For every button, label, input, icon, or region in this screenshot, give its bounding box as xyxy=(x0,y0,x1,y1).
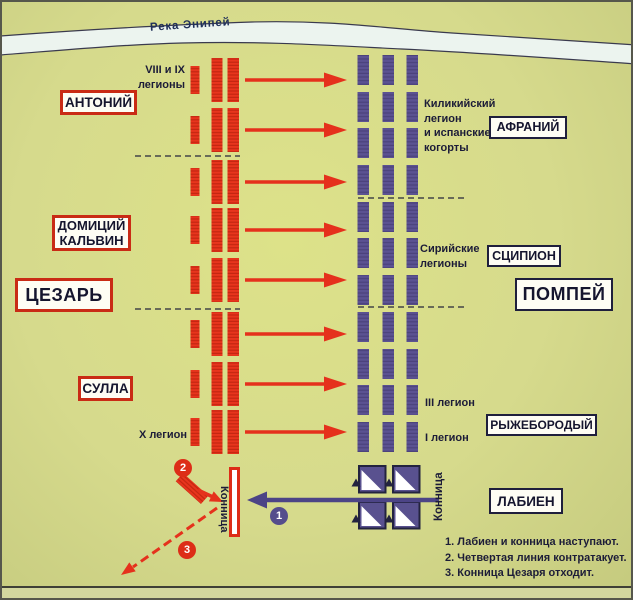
pompey-unit xyxy=(383,55,395,85)
caesar-unit-first-line xyxy=(228,58,240,102)
attack-arrow-head xyxy=(324,73,347,88)
pompey-unit xyxy=(358,128,370,158)
caesar-unit-third-line xyxy=(191,320,200,348)
pompey-unit xyxy=(358,238,370,268)
caesar-unit-second-line xyxy=(212,410,223,454)
legend-item-1: 1. Лабиен и конница наступают. xyxy=(445,535,627,551)
caesar-unit-third-line xyxy=(191,216,200,244)
pompey-unit xyxy=(407,349,419,379)
pompey-unit xyxy=(358,202,370,232)
attack-arrows xyxy=(245,73,347,440)
commander-box-ahenobarbus: РЫЖЕБОРОДЫЙ xyxy=(486,414,597,436)
pompey-unit xyxy=(358,422,370,452)
pompey-infantry-units xyxy=(358,55,419,452)
unit-label-syrian-legions: Сирийские легионы xyxy=(420,242,490,271)
unit-label-legion-i: I легион xyxy=(425,431,495,446)
cavalry-retreat-arrow-shaft xyxy=(133,508,217,567)
caesar-unit-first-line xyxy=(228,258,240,302)
pompey-unit xyxy=(383,165,395,195)
caesar-unit-first-line xyxy=(228,208,240,252)
pompey-unit xyxy=(383,275,395,305)
attack-arrow-head xyxy=(324,175,347,190)
pompey-unit xyxy=(383,202,395,232)
pompey-cavalry-squares xyxy=(352,466,420,529)
pompey-unit xyxy=(407,275,419,305)
battle-map: Река Энипей АНТОНИЙ ДОМИЦИЙ КАЛЬВИН ЦЕЗА… xyxy=(0,0,633,600)
pompey-unit xyxy=(358,275,370,305)
pompey-unit xyxy=(383,312,395,342)
commander-box-antony: АНТОНИЙ xyxy=(60,90,137,115)
commander-box-afranius: АФРАНИЙ xyxy=(489,116,567,139)
caesar-unit-third-line xyxy=(191,116,200,144)
attack-arrow-head xyxy=(324,425,347,440)
army-box-pompey: ПОМПЕЙ xyxy=(515,278,613,311)
unit-label-legion-x: X легион xyxy=(114,428,187,443)
commander-box-domitius-calvinus: ДОМИЦИЙ КАЛЬВИН xyxy=(52,215,131,251)
movement-badge-3: 3 xyxy=(178,541,196,559)
pompey-unit xyxy=(383,349,395,379)
attack-arrow-head xyxy=(324,377,347,392)
movement-badge-1: 1 xyxy=(270,507,288,525)
caesar-unit-first-line xyxy=(228,108,240,152)
caesar-unit-second-line xyxy=(212,208,223,252)
pompey-unit xyxy=(407,55,419,85)
pompey-unit xyxy=(407,312,419,342)
pompey-unit xyxy=(383,422,395,452)
pompey-unit xyxy=(383,92,395,122)
caesar-unit-second-line xyxy=(212,258,223,302)
commander-box-sulla: СУЛЛА xyxy=(78,376,133,401)
caesar-unit-third-line xyxy=(191,266,200,294)
cavalry-retreat-arrow-head xyxy=(121,562,136,575)
caesar-infantry-units xyxy=(191,58,240,454)
caesar-cavalry-label: Конница xyxy=(218,486,230,538)
commander-box-scipio: СЦИПИОН xyxy=(487,245,561,267)
caesar-unit-first-line xyxy=(228,160,240,204)
commander-box-labienus: ЛАБИЕН xyxy=(489,488,563,514)
unit-label-cilician-spanish: Киликийский легион и испанские когорты xyxy=(424,97,499,155)
river xyxy=(2,22,633,64)
caesar-unit-third-line xyxy=(191,168,200,196)
attack-arrow-head xyxy=(324,273,347,288)
army-box-caesar: ЦЕЗАРЬ xyxy=(15,278,113,312)
caesar-unit-third-line xyxy=(191,418,200,446)
pompey-unit xyxy=(358,385,370,415)
pompey-unit xyxy=(407,238,419,268)
caesar-unit-second-line xyxy=(212,362,223,406)
caesar-unit-second-line xyxy=(212,108,223,152)
pompey-unit xyxy=(407,128,419,158)
unit-label-legion-iii: III легион xyxy=(425,396,495,411)
caesar-unit-first-line xyxy=(228,312,240,356)
pompey-unit xyxy=(407,385,419,415)
pompey-unit xyxy=(407,202,419,232)
caesar-unit-first-line xyxy=(228,362,240,406)
caesar-unit-second-line xyxy=(212,58,223,102)
pompey-unit xyxy=(407,165,419,195)
photo-edge-strip xyxy=(2,586,633,600)
attack-arrow-head xyxy=(324,327,347,342)
caesar-unit-first-line xyxy=(228,410,240,454)
unit-label-legions-viii-ix: VIII и IX легионы xyxy=(112,63,185,92)
caesar-fourth-line-unit xyxy=(176,473,209,504)
caesar-unit-second-line xyxy=(212,312,223,356)
caesar-unit-third-line xyxy=(191,370,200,398)
pompey-unit xyxy=(358,92,370,122)
pompey-unit xyxy=(358,312,370,342)
legend-item-2: 2. Четвертая линия контратакует. xyxy=(445,551,627,567)
pompey-unit xyxy=(358,349,370,379)
pompey-unit xyxy=(383,385,395,415)
pompey-unit xyxy=(383,128,395,158)
movement-badge-2: 2 xyxy=(174,459,192,477)
labienus-charge-arrow-head xyxy=(247,492,267,509)
pompey-unit xyxy=(358,165,370,195)
caesar-unit-second-line xyxy=(212,160,223,204)
legend: 1. Лабиен и конница наступают. 2. Четвер… xyxy=(445,535,627,582)
attack-arrow-head xyxy=(324,223,347,238)
pompey-unit xyxy=(407,92,419,122)
pompey-unit xyxy=(383,238,395,268)
legend-item-3: 3. Конница Цезаря отходит. xyxy=(445,566,627,582)
attack-arrow-head xyxy=(324,123,347,138)
pompey-unit xyxy=(358,55,370,85)
caesar-cavalry-bar xyxy=(229,467,240,537)
pompey-unit xyxy=(407,422,419,452)
caesar-unit-third-line xyxy=(191,66,200,94)
pompey-cavalry-label: Конница xyxy=(433,471,445,521)
